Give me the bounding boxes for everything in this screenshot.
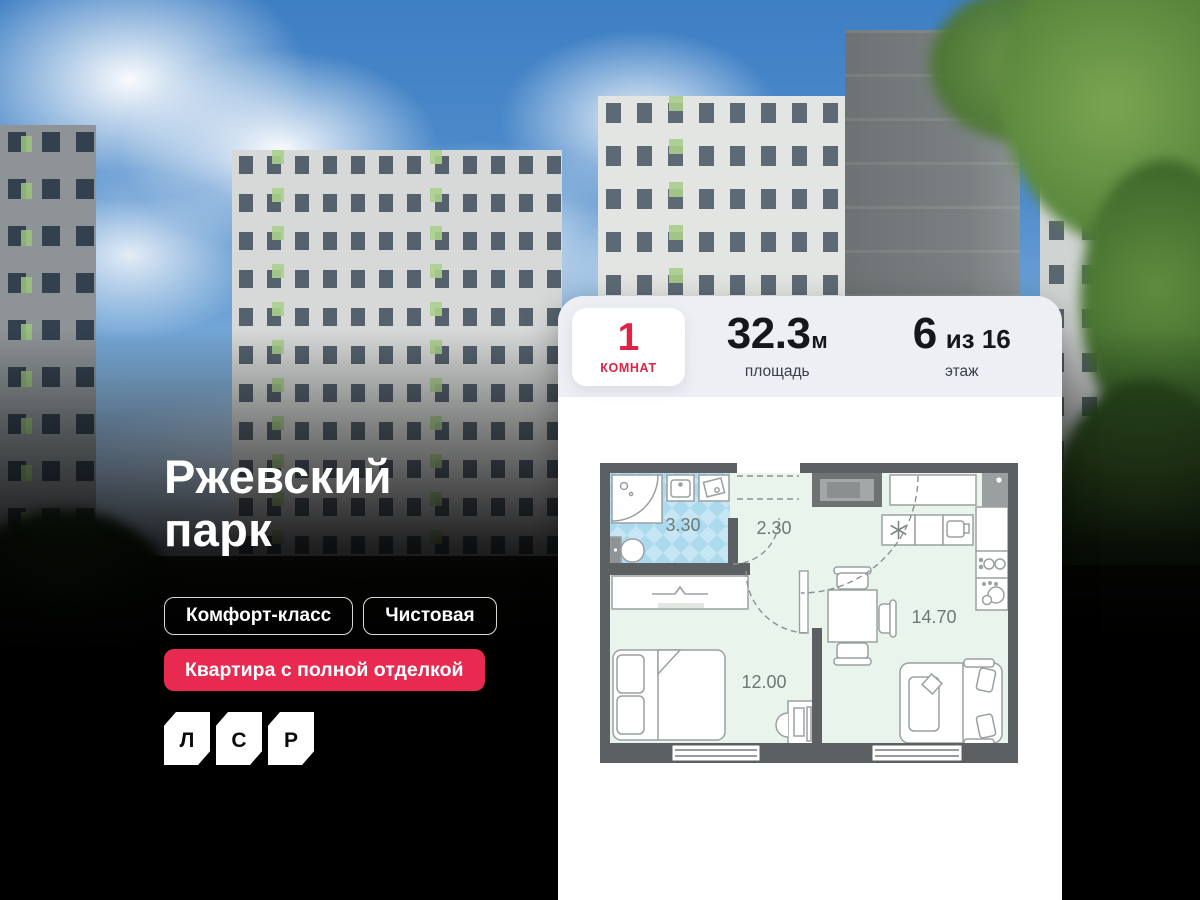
- entry-closet: [812, 473, 882, 507]
- rooms-card: 1 КОМНАТ: [572, 308, 685, 386]
- bedroom-door-leaf: [800, 571, 809, 633]
- shower: [612, 475, 662, 523]
- promo-banner: Ржевский парк Комфорт-класс Чистовая Ква…: [0, 0, 1200, 900]
- pillow: [976, 714, 996, 739]
- rooms-value: 1: [618, 318, 640, 357]
- room-area-bathroom: 3.30: [665, 515, 700, 535]
- bathroom-sink: [667, 475, 694, 501]
- tag-finishing: Чистовая: [363, 597, 496, 635]
- lsr-developer-logo: Л С Р: [164, 712, 497, 765]
- tag-comfort-class: Комфорт-класс: [164, 597, 353, 635]
- floor-plan-drawing: 3.30 2.30 14.70 12.00: [600, 463, 1018, 763]
- logo-tile-s: С: [216, 712, 262, 765]
- kitchen-counter: [890, 475, 976, 505]
- room-area-kitchen-living: 14.70: [911, 607, 956, 627]
- pillow: [617, 655, 644, 693]
- bed: [613, 650, 725, 740]
- area-unit: м: [811, 330, 827, 352]
- bathroom-wall: [600, 563, 750, 575]
- apartment-panel: 1 КОМНАТ 32.3 м площадь 6 из 16 этаж: [558, 296, 1062, 900]
- room-area-hallway: 2.30: [756, 518, 791, 538]
- pillow: [617, 696, 644, 734]
- room-area-bedroom: 12.00: [741, 672, 786, 692]
- bedroom-divider-wall: [812, 628, 822, 743]
- kitchen-sink: [943, 515, 973, 545]
- tag-row: Комфорт-класс Чистовая: [164, 597, 497, 635]
- rooms-label: КОМНАТ: [600, 361, 656, 375]
- area-label: площадь: [745, 363, 810, 381]
- apartment-stats: 1 КОМНАТ 32.3 м площадь 6 из 16 этаж: [558, 296, 1062, 397]
- floor-label: этаж: [945, 363, 978, 381]
- wardrobe: [612, 576, 748, 609]
- right-counter: [976, 507, 1008, 610]
- toilet: [610, 537, 644, 564]
- window: [672, 745, 760, 761]
- project-title-line2: парк: [164, 503, 497, 556]
- dining-table: [828, 590, 877, 642]
- kitchen-corner-cabinet: [982, 473, 1008, 507]
- dining-chair: [834, 567, 871, 589]
- floor-value: 6: [913, 312, 937, 356]
- area-stat: 32.3 м площадь: [685, 312, 870, 381]
- washing-machine: [699, 475, 729, 501]
- kitchen-cabinet: [915, 515, 943, 545]
- logo-tile-r: Р: [268, 712, 314, 765]
- window: [872, 745, 962, 761]
- pillow: [976, 668, 996, 693]
- project-title-line1: Ржевский: [164, 450, 497, 503]
- dining-chair: [834, 643, 871, 665]
- area-value: 32.3: [727, 312, 811, 356]
- floor-plan: 3.30 2.30 14.70 12.00: [600, 463, 1018, 763]
- project-title: Ржевский парк: [164, 450, 497, 556]
- project-info: Ржевский парк Комфорт-класс Чистовая Ква…: [164, 450, 497, 765]
- logo-tile-l: Л: [164, 712, 210, 765]
- sofa-bed: [900, 659, 1002, 747]
- bathroom-wall-stub: [728, 518, 738, 563]
- full-finish-badge: Квартира с полной отделкой: [164, 649, 485, 691]
- floor-of-total: из 16: [946, 326, 1011, 352]
- floor-stat: 6 из 16 этаж: [870, 312, 1055, 381]
- dining-chair: [879, 600, 896, 637]
